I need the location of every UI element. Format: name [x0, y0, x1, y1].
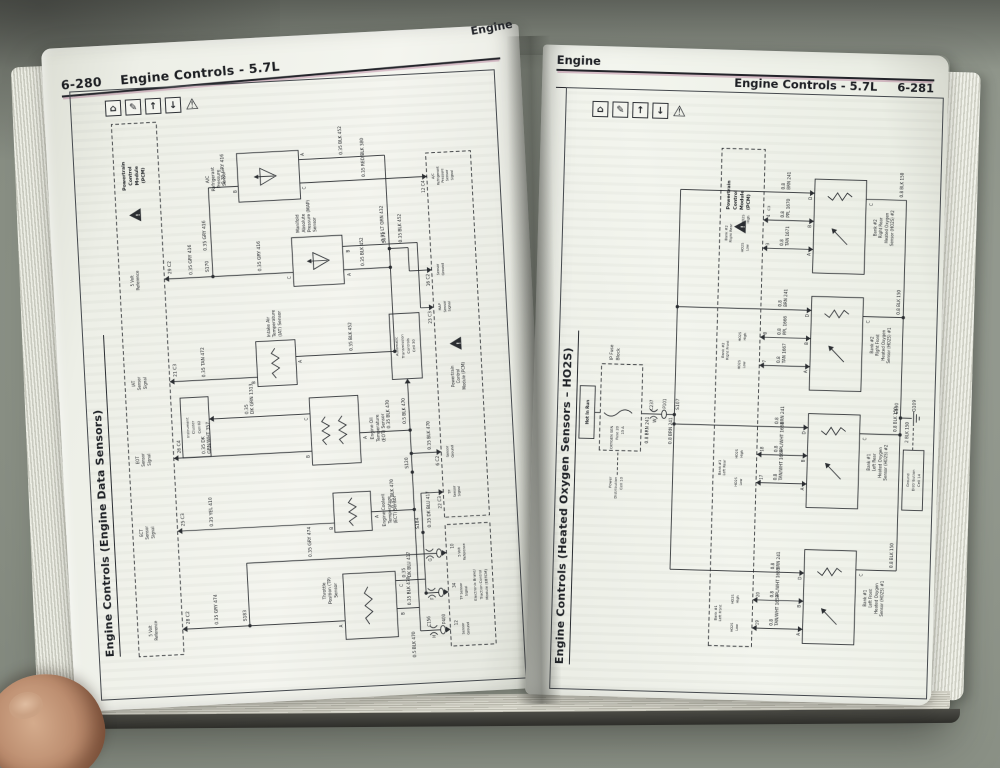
- heater-symbol: [821, 427, 846, 435]
- diagram-label: 6 C2: [435, 455, 442, 465]
- diagram-label: C: [287, 276, 292, 279]
- diagram-label: 0.35 TAN 472: [200, 347, 208, 378]
- diagram-label: Sensor (HO2S) #1: [879, 580, 885, 617]
- diagram-label: 0.8: [779, 239, 784, 246]
- left-page-content: 6-280 Engine Controls - 5.7L Engine ⌂✎↑↓…: [41, 24, 553, 712]
- diagram-label: EOT: [135, 456, 140, 465]
- diagram-label: B: [233, 190, 238, 193]
- pin-arrow: [807, 307, 812, 313]
- diagram-label: Block: [616, 348, 622, 361]
- right-page-number: 6-281: [897, 80, 934, 95]
- splice-dot: [413, 508, 417, 512]
- diagram-label: 4: [766, 214, 771, 217]
- diagram-label: 16 C2: [425, 273, 432, 286]
- diagram-label: S183: [242, 610, 249, 622]
- diagram-label: A: [806, 253, 811, 256]
- wire: [670, 189, 681, 569]
- diagram-label: 0.35 LT GRN 432: [378, 205, 386, 241]
- wire: [174, 451, 312, 458]
- diagram-label: 21 C3: [172, 363, 179, 377]
- diagram-label: S184: [414, 517, 421, 529]
- wire: [856, 570, 896, 571]
- wire: [681, 189, 815, 193]
- component-box: [802, 550, 856, 645]
- component-box: [809, 296, 863, 391]
- diagram-label: C237: [649, 399, 654, 410]
- diagram-label: HO2S: [737, 360, 741, 370]
- diagram-label: 18: [759, 446, 764, 452]
- diagram-label: 0.35: [244, 404, 251, 414]
- splice-dot: [898, 433, 901, 436]
- diagram-label: Signal: [142, 377, 148, 389]
- wire: [209, 414, 310, 419]
- component-box: [333, 491, 372, 532]
- pin-arrow: [427, 267, 432, 273]
- diagram-label: Cell 82: [197, 421, 202, 434]
- diagram-label: 0.8: [774, 417, 779, 424]
- warning-mark: !: [741, 225, 747, 228]
- diagram-label: Sensor (HO2S) #1: [886, 327, 892, 364]
- wire: [389, 248, 408, 249]
- wire: [863, 317, 903, 318]
- wire: [866, 199, 906, 200]
- diagram-label: 0.35 BLK 470: [405, 576, 413, 605]
- diagram-label: Powertrain: [450, 365, 456, 387]
- right-diagram-rotated: !Hot In RunIP FuseBlockOXYGEN SENFuse 20…: [567, 112, 935, 685]
- diagram-label: A: [346, 273, 351, 276]
- resistor-symbol: [321, 417, 330, 445]
- diagram-label: A: [374, 515, 379, 518]
- diagram-label: 0.8: [776, 356, 781, 363]
- diagram-label: C: [399, 584, 404, 587]
- diagram-label: 0.35 YEL 410: [207, 497, 215, 527]
- wire: [763, 220, 814, 221]
- diagram-label: 12: [454, 620, 459, 626]
- diagram-label: PPL 1670: [786, 198, 792, 218]
- diagram-label: Signal: [457, 486, 462, 497]
- pin-arrow: [444, 589, 449, 595]
- diagram-label: S170: [204, 260, 211, 272]
- diagram-label: 28 C2: [185, 611, 192, 625]
- diagram-label: Transmission: [400, 333, 405, 359]
- diagram-label: Distribution: [911, 469, 916, 492]
- pin-arrow: [170, 379, 175, 385]
- diagram-label: Low: [742, 361, 746, 368]
- diagram-label: 0.35 RED/BLK 380: [359, 137, 367, 177]
- diagram-label: Bank #1: [713, 605, 717, 620]
- diagram-label: D: [801, 431, 806, 434]
- diagram-label: HO2S: [741, 215, 745, 225]
- diagram-label: Right Rear: [729, 223, 734, 242]
- diagram-label: 0.5 BLK 470: [401, 397, 408, 423]
- diagram-label: C: [869, 203, 874, 206]
- diagram-label: HO2S: [731, 594, 735, 604]
- diagram-label: F: [430, 597, 435, 600]
- diagram-label: Electronic Brake/: [472, 568, 478, 600]
- diagram-label: ECT: [139, 529, 144, 537]
- diagram-label: Signal: [447, 301, 452, 312]
- diagram-label: Ground: [441, 263, 446, 276]
- diagram-label: 15 A: [621, 426, 625, 435]
- diagram-label: IP Fuse: [609, 344, 615, 360]
- diagram-label: B: [800, 459, 805, 462]
- grommet: [436, 549, 441, 558]
- resistor-symbol: [348, 498, 357, 526]
- diagram-label: Controls: [406, 338, 411, 354]
- wire: [344, 267, 391, 269]
- diagram-label: Signal: [450, 170, 455, 181]
- pin-arrow: [806, 335, 811, 341]
- diagram-label: B: [807, 225, 812, 228]
- warning-mark: !: [136, 213, 142, 216]
- diagram-label: C: [865, 320, 870, 323]
- diagram-label: Distribution: [614, 476, 619, 499]
- diagram-label: MAP: [438, 303, 442, 310]
- diagram-label: P400: [441, 613, 447, 624]
- component-box: [309, 395, 361, 465]
- splice-dot: [388, 247, 392, 251]
- pin-arrow: [174, 455, 179, 461]
- diagram-label: 26 C4: [176, 440, 183, 454]
- pin-arrow: [803, 425, 808, 431]
- wire: [421, 493, 426, 593]
- diagram-label: BRN 241: [783, 289, 789, 307]
- left-page: 6-280 Engine Controls - 5.7L Engine ⌂✎↑↓…: [41, 24, 553, 712]
- pin-arrow: [802, 481, 807, 487]
- component-box: [813, 179, 867, 274]
- splice-dot: [408, 428, 412, 432]
- wire: [763, 248, 814, 249]
- diagram-label: HO2S: [730, 623, 734, 633]
- diagram-label: Traction Control: [478, 570, 484, 601]
- diagram-label: High: [740, 450, 744, 458]
- diagram-label: A: [803, 370, 808, 373]
- pin-arrow: [810, 190, 815, 196]
- pin-arrow: [164, 276, 169, 282]
- diagram-label: Cluster: [191, 420, 196, 434]
- wire: [408, 248, 409, 271]
- diagram-label: Power: [608, 476, 612, 488]
- diagram-label: HO2S: [741, 243, 745, 253]
- diagram-label: HO2S: [738, 332, 742, 342]
- splice-dot: [676, 305, 679, 308]
- diagram-label: Module (EBTCM): [484, 568, 490, 599]
- o2-element: [826, 465, 840, 479]
- left-diagram-frame: ⌂✎↑↓⚠ Engine Controls (Engine Data Senso…: [69, 69, 526, 700]
- wire: [913, 425, 914, 450]
- diagram-label: C: [303, 417, 308, 420]
- diagram-label: Left Front: [718, 604, 722, 621]
- wire: [860, 434, 900, 435]
- diagram-label: Sensor: [312, 217, 319, 232]
- pin-arrow: [183, 626, 188, 632]
- diagram-label: Instrument: [185, 417, 190, 438]
- diagram-label: (PCM): [746, 194, 752, 210]
- diagram-label: S130: [894, 403, 900, 415]
- diagram-label: Right Front: [875, 334, 881, 356]
- diagram-label: 34: [452, 582, 457, 588]
- diagram-label: 0.8: [778, 300, 783, 307]
- diagram-label: 0.8: [769, 591, 774, 598]
- diagram-label: B: [345, 249, 350, 252]
- diagram-label: B: [329, 527, 334, 530]
- pressure-sensor-arrowhead: [307, 259, 312, 264]
- diagram-label: Cell 10: [619, 476, 623, 490]
- right-page: Engine Engine Controls - 5.7L 6-281 ⌂✎↑↓…: [525, 44, 949, 705]
- splice-dot: [899, 416, 902, 419]
- grommet: [440, 625, 445, 634]
- book-photo-scene: 6-280 Engine Controls - 5.7L Engine ⌂✎↑↓…: [0, 0, 1000, 768]
- diagram-label: A: [800, 487, 805, 490]
- splice-dot: [389, 266, 393, 270]
- heater-symbol: [817, 568, 842, 576]
- diagram-label: 12 C4: [420, 180, 427, 193]
- splice-dot: [421, 531, 425, 535]
- diagram-label: Bank #2: [869, 336, 874, 354]
- diagram-label: Fuse 20: [615, 425, 619, 440]
- pin-arrow: [803, 453, 808, 459]
- diagram-label: 0.35 DK BLU 417: [425, 491, 433, 528]
- diagram-label: 8: [763, 331, 768, 334]
- wire: [642, 414, 675, 415]
- diagram-label: 0.8: [780, 211, 785, 218]
- left-diagram-rotated: !!5 VoltReferenceECTSensorSignalEOTSenso…: [101, 94, 504, 674]
- component-box: [343, 571, 399, 639]
- splice-dot: [673, 413, 676, 416]
- diagram-label: 0.8 BLK 150: [899, 172, 905, 197]
- diagram-label: Right Rear: [878, 217, 884, 238]
- diagram-label: 0.35 BLK 470: [425, 421, 433, 450]
- diagram-label: D: [808, 197, 813, 200]
- wire: [752, 628, 803, 629]
- diagram-label: 0.8 BRN 241: [644, 416, 651, 443]
- diagram-label: B: [804, 342, 809, 345]
- pin-arrow: [404, 379, 410, 384]
- diagram-label: 0.35 BLK 452: [397, 213, 405, 242]
- diagram-label: 0.8 BLK 150: [896, 289, 902, 314]
- wire: [183, 621, 345, 630]
- fuse-symbol: [604, 409, 632, 416]
- diagram-label: 0.35 BLK 452: [359, 237, 367, 266]
- grommet: [661, 410, 666, 419]
- heater-symbol: [824, 310, 849, 318]
- warning-mark: !: [456, 342, 462, 345]
- diagram-label: A/C: [205, 176, 211, 184]
- diagram-label: B: [401, 612, 406, 615]
- diagram-label: Low: [745, 244, 749, 251]
- diagram-label: G: [428, 558, 433, 561]
- resistor-symbol: [271, 348, 280, 378]
- diagram-label: Cell 30: [412, 338, 417, 352]
- splice-dot: [248, 624, 252, 628]
- diagram-label: Reference: [462, 543, 467, 560]
- diagram-label: TAN 1671: [785, 226, 791, 247]
- diagram-label: 0.35 GRY 474: [212, 594, 220, 625]
- diagram-label: Powertrain: [726, 180, 733, 209]
- diagram-label: TP: [448, 490, 452, 495]
- diagram-label: A: [339, 624, 344, 627]
- pressure-sensor-arrowhead: [253, 175, 258, 180]
- diagram-label: 10: [450, 543, 455, 549]
- diagram-label: 5 Volt: [129, 275, 135, 287]
- diagram-label: TAN/WHT 1669: [778, 449, 784, 481]
- splice-dot: [411, 470, 415, 474]
- diagram-label: PPL/WHT 1665: [775, 567, 781, 598]
- diagram-label: BRN 241: [776, 551, 782, 569]
- pin-arrow: [422, 173, 427, 179]
- diagram-label: 0.8 BRN 241: [668, 417, 675, 444]
- wire: [164, 272, 293, 279]
- diagram-label: 25 C3: [180, 513, 187, 527]
- diagram-label: Signal: [464, 586, 469, 597]
- diagram-label: Ground: [906, 473, 910, 488]
- right-page-content: Engine Engine Controls - 5.7L 6-281 ⌂✎↑↓…: [525, 44, 949, 705]
- pin-arrow: [209, 416, 214, 422]
- diagram-label: 19: [755, 620, 760, 626]
- diagram-label: 0.8 BLK 150: [889, 543, 895, 568]
- diagram-label: 0.8: [773, 445, 778, 452]
- diagram-label: Hot In Run: [585, 400, 591, 425]
- wire: [759, 365, 810, 366]
- diagram-label: Control: [127, 166, 134, 186]
- diagram-label: C3: [767, 205, 771, 211]
- diagram-label: W: [652, 419, 657, 423]
- component-box: [806, 414, 860, 509]
- diagram-label: Powertrain: [121, 162, 129, 191]
- diagram-label: Sensor: [221, 171, 228, 186]
- diagram-label: Module: [134, 166, 141, 186]
- diagram-label: A: [298, 360, 303, 363]
- diagram-label: S107: [675, 398, 681, 410]
- diagram-label: G109: [912, 400, 918, 412]
- splice-dot: [410, 452, 414, 456]
- diagram-label: Bank #1: [718, 460, 722, 475]
- diagram-label: Reference: [135, 270, 141, 291]
- diagram-label: Low: [739, 478, 743, 485]
- diagram-label: C156: [426, 616, 432, 627]
- diagram-label: C: [862, 437, 867, 440]
- diagram-label: 0.8: [770, 562, 775, 569]
- diagram-label: B: [796, 605, 801, 608]
- diagram-label: Cell 14: [917, 473, 921, 487]
- diagram-label: A: [300, 153, 305, 156]
- diagram-label: 29 C2: [167, 261, 174, 275]
- diagram-label: High: [746, 216, 750, 224]
- diagram-label: 0.5 BLK 470: [411, 631, 418, 657]
- diagram-label: Ground: [450, 445, 455, 458]
- diagram-label: TAN/WHT 1653: [774, 594, 780, 626]
- pin-arrow: [799, 570, 804, 576]
- grommet: [438, 588, 443, 597]
- diagram-label: Bank #2: [721, 342, 725, 357]
- diagram-label: PPL 1666: [782, 316, 788, 336]
- wire: [760, 337, 811, 338]
- diagram-label: 2 BLK 150: [904, 422, 910, 443]
- diagram-label: Left Rear: [722, 459, 726, 476]
- pin-arrow: [429, 304, 434, 310]
- diagram-label: H: [432, 635, 437, 638]
- wire: [896, 200, 906, 570]
- splice-dot: [424, 591, 428, 595]
- wire: [296, 351, 395, 356]
- diagram-label: BRN 241: [786, 171, 792, 189]
- diagram-label: Bank #1: [866, 453, 871, 471]
- pin-arrow: [809, 218, 814, 224]
- diagram-label: 17: [759, 474, 764, 480]
- diagram-label: TAN 1667: [782, 343, 788, 364]
- diagram-label: S120: [404, 457, 411, 469]
- pin-arrow: [808, 246, 813, 252]
- diagram-label: OXYGEN SEN: [609, 426, 614, 450]
- diagram-label: Bank #2: [872, 219, 877, 237]
- diagram-label: (PCM): [141, 167, 148, 183]
- diagram-label: 0.8: [773, 473, 778, 480]
- wire: [170, 377, 258, 382]
- splice-dot: [211, 275, 215, 279]
- diagram-label: 22 C3: [437, 496, 444, 509]
- diagram-label: Module: [739, 190, 746, 210]
- resistor-symbol: [364, 587, 373, 625]
- pin-arrow: [436, 449, 441, 455]
- heated-oxygen-sensors-diagram: !Hot In RunIP FuseBlockOXYGEN SENFuse 20…: [567, 112, 935, 685]
- diagram-label: 0.35 GRY 416: [187, 244, 195, 275]
- pin-arrow: [805, 364, 810, 370]
- diagram-label: Ground: [466, 622, 471, 635]
- diagram-label: C: [858, 573, 863, 576]
- diagram-label: 0.8: [769, 619, 774, 626]
- pin-arrow: [799, 598, 804, 604]
- diagram-label: Control: [732, 190, 739, 210]
- diagram-label: D: [797, 577, 802, 580]
- diagram-label: Left Front: [868, 589, 874, 608]
- wire: [342, 242, 417, 246]
- diagram-label: Bank #2: [724, 225, 728, 240]
- diagram-label: 0.35 GRY 416: [256, 241, 264, 272]
- diagram-label: HO2S: [734, 477, 738, 487]
- diagram-label: 7: [762, 360, 767, 363]
- diagram-label: 0.8: [781, 182, 786, 189]
- thumb-nail: [6, 688, 46, 722]
- diagram-label: Bank #1: [862, 589, 867, 607]
- diagram-label: C: [302, 186, 307, 189]
- diagram-label: 3: [765, 242, 770, 245]
- diagram-label: 0.35 GRY 474: [306, 526, 314, 557]
- diagram-label: P101: [662, 398, 667, 409]
- diagram-label: 5 Volt: [148, 625, 154, 637]
- o2-element: [830, 348, 844, 362]
- diagram-label: 0.35 BLK 452: [337, 126, 345, 155]
- wire: [674, 424, 808, 428]
- right-diagram-frame: ⌂✎↑↓⚠ Engine Controls (Heated Oxygen Sen…: [549, 87, 944, 699]
- wire: [397, 607, 419, 608]
- pin-arrow: [442, 550, 447, 556]
- component-box: [599, 364, 643, 451]
- diagram-label: Signal: [150, 526, 156, 538]
- heater-symbol: [828, 193, 853, 201]
- diagram-label: Signal: [146, 454, 152, 466]
- wire: [417, 242, 420, 307]
- diagram-label: BRN 241: [780, 406, 786, 424]
- diagram-label: 23 C3: [427, 311, 434, 324]
- component-box: [256, 340, 298, 387]
- wire: [299, 155, 385, 160]
- diagram-label: PPL/WHT 1668: [779, 422, 785, 453]
- diagram-label: 0.35 BLK 452: [347, 322, 355, 351]
- diagram-label: Right Front: [725, 340, 730, 360]
- diagram-label: B: [305, 455, 310, 458]
- diagram-label: 0.35: [401, 567, 408, 577]
- diagram-label: A: [796, 633, 801, 636]
